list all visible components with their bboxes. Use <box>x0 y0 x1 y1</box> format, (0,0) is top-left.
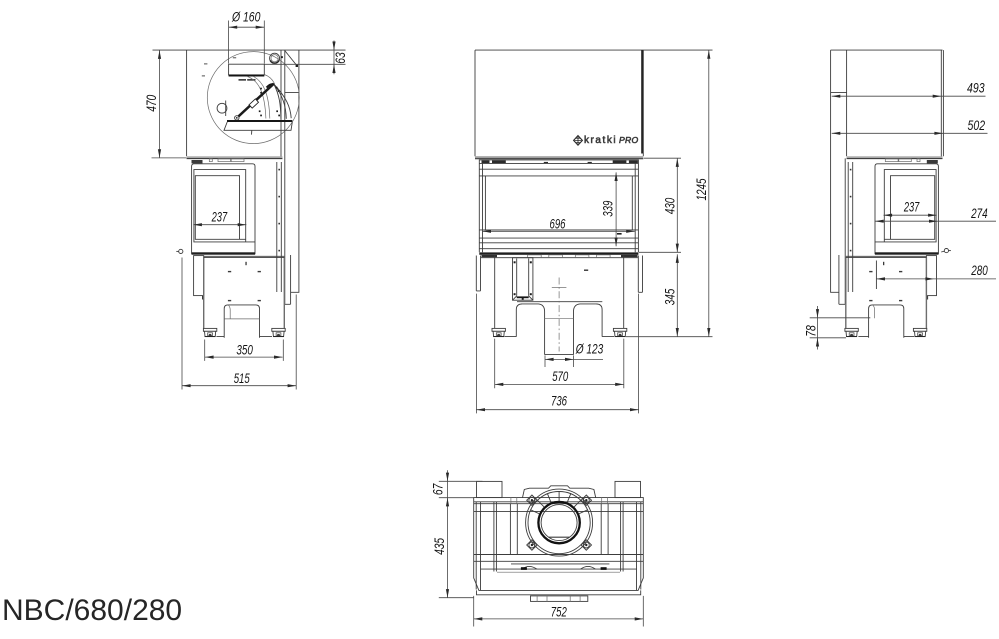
svg-text:PRO: PRO <box>619 135 639 145</box>
svg-text:752: 752 <box>551 604 567 620</box>
svg-text:Ø 123: Ø 123 <box>575 342 603 358</box>
svg-text:493: 493 <box>967 81 985 97</box>
svg-text:237: 237 <box>903 200 920 216</box>
svg-text:63: 63 <box>333 52 349 64</box>
svg-text:430: 430 <box>662 198 678 215</box>
svg-text:502: 502 <box>968 118 986 134</box>
svg-text:470: 470 <box>144 95 160 112</box>
svg-text:NBC/680/280: NBC/680/280 <box>2 594 182 627</box>
svg-text:67: 67 <box>431 483 447 495</box>
svg-text:736: 736 <box>551 394 567 410</box>
svg-text:696: 696 <box>550 216 566 232</box>
svg-text:237: 237 <box>211 209 228 225</box>
svg-text:435: 435 <box>432 538 448 555</box>
svg-text:350: 350 <box>236 343 253 359</box>
svg-text:345: 345 <box>662 289 678 306</box>
svg-text:kratki: kratki <box>584 135 617 146</box>
svg-text:1245: 1245 <box>694 178 710 200</box>
svg-text:Ø 160: Ø 160 <box>231 10 260 26</box>
svg-text:280: 280 <box>971 263 988 279</box>
svg-text:78: 78 <box>804 325 820 337</box>
svg-text:274: 274 <box>970 206 987 222</box>
svg-text:515: 515 <box>234 371 250 387</box>
svg-text:339: 339 <box>601 201 617 217</box>
svg-text:570: 570 <box>552 369 568 385</box>
